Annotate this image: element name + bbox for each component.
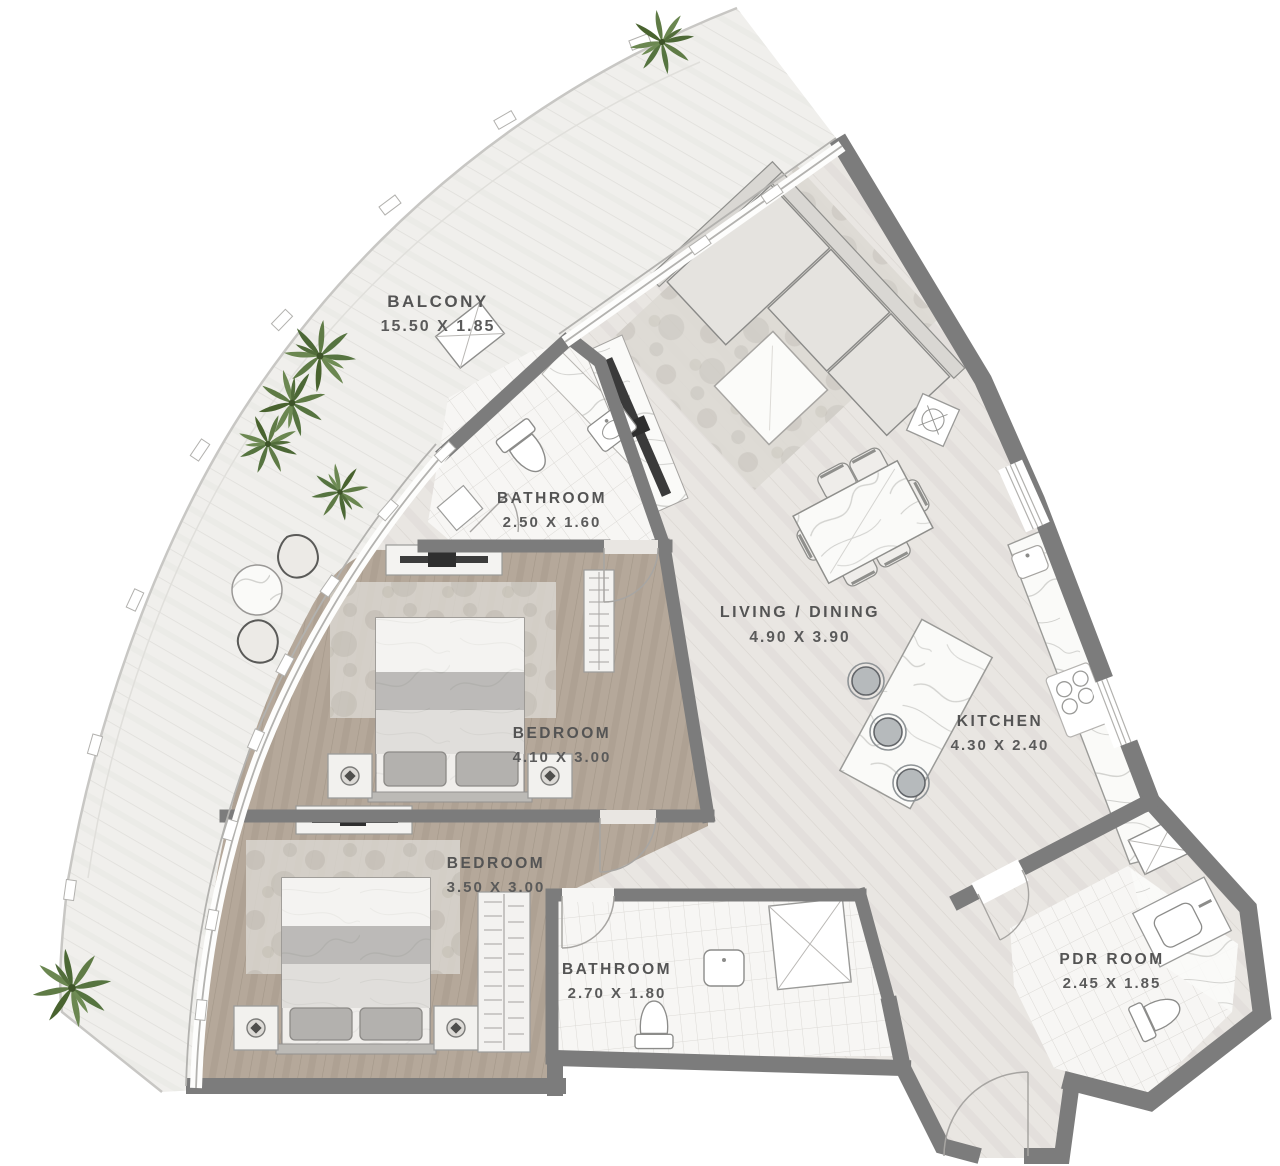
pillow	[456, 752, 518, 786]
wardrobe	[584, 570, 614, 672]
label-living-dining-dims: 4.90 X 3.90	[749, 629, 850, 646]
label-bedroom-2-dims: 3.50 X 3.00	[447, 879, 546, 896]
pillow	[290, 1008, 352, 1040]
label-bathroom-2: BATHROOM	[562, 961, 672, 978]
label-bathroom-1: BATHROOM	[497, 490, 607, 507]
pillow	[384, 752, 446, 786]
sink-icon	[704, 950, 744, 986]
label-kitchen-dims: 4.30 X 2.40	[951, 737, 1050, 754]
label-bedroom-1-dims: 4.10 X 3.00	[513, 749, 612, 766]
label-pdr-room-dims: 2.45 X 1.85	[1063, 975, 1162, 992]
wardrobe	[478, 892, 530, 1052]
label-pdr-room: PDR ROOM	[1059, 951, 1164, 968]
label-balcony-dims: 15.50 X 1.85	[381, 318, 496, 335]
label-bathroom-2-dims: 2.70 X 1.80	[568, 985, 667, 1002]
label-kitchen: KITCHEN	[957, 713, 1043, 730]
floor-plan-svg: BALCONY 15.50 X 1.85 BATHROOM 2.50 X 1.6…	[0, 0, 1280, 1166]
bed-1	[368, 618, 532, 802]
floor-plan: BALCONY 15.50 X 1.85 BATHROOM 2.50 X 1.6…	[0, 0, 1280, 1166]
bed-2	[276, 878, 436, 1054]
shower-icon	[769, 898, 851, 989]
label-bedroom-1: BEDROOM	[513, 725, 611, 742]
label-bathroom-1-dims: 2.50 X 1.60	[503, 514, 602, 531]
label-living-dining: LIVING / DINING	[720, 604, 880, 621]
label-balcony: BALCONY	[387, 292, 489, 311]
pillow	[360, 1008, 422, 1040]
balcony-table-icon	[232, 565, 282, 615]
label-bedroom-2: BEDROOM	[447, 855, 545, 872]
